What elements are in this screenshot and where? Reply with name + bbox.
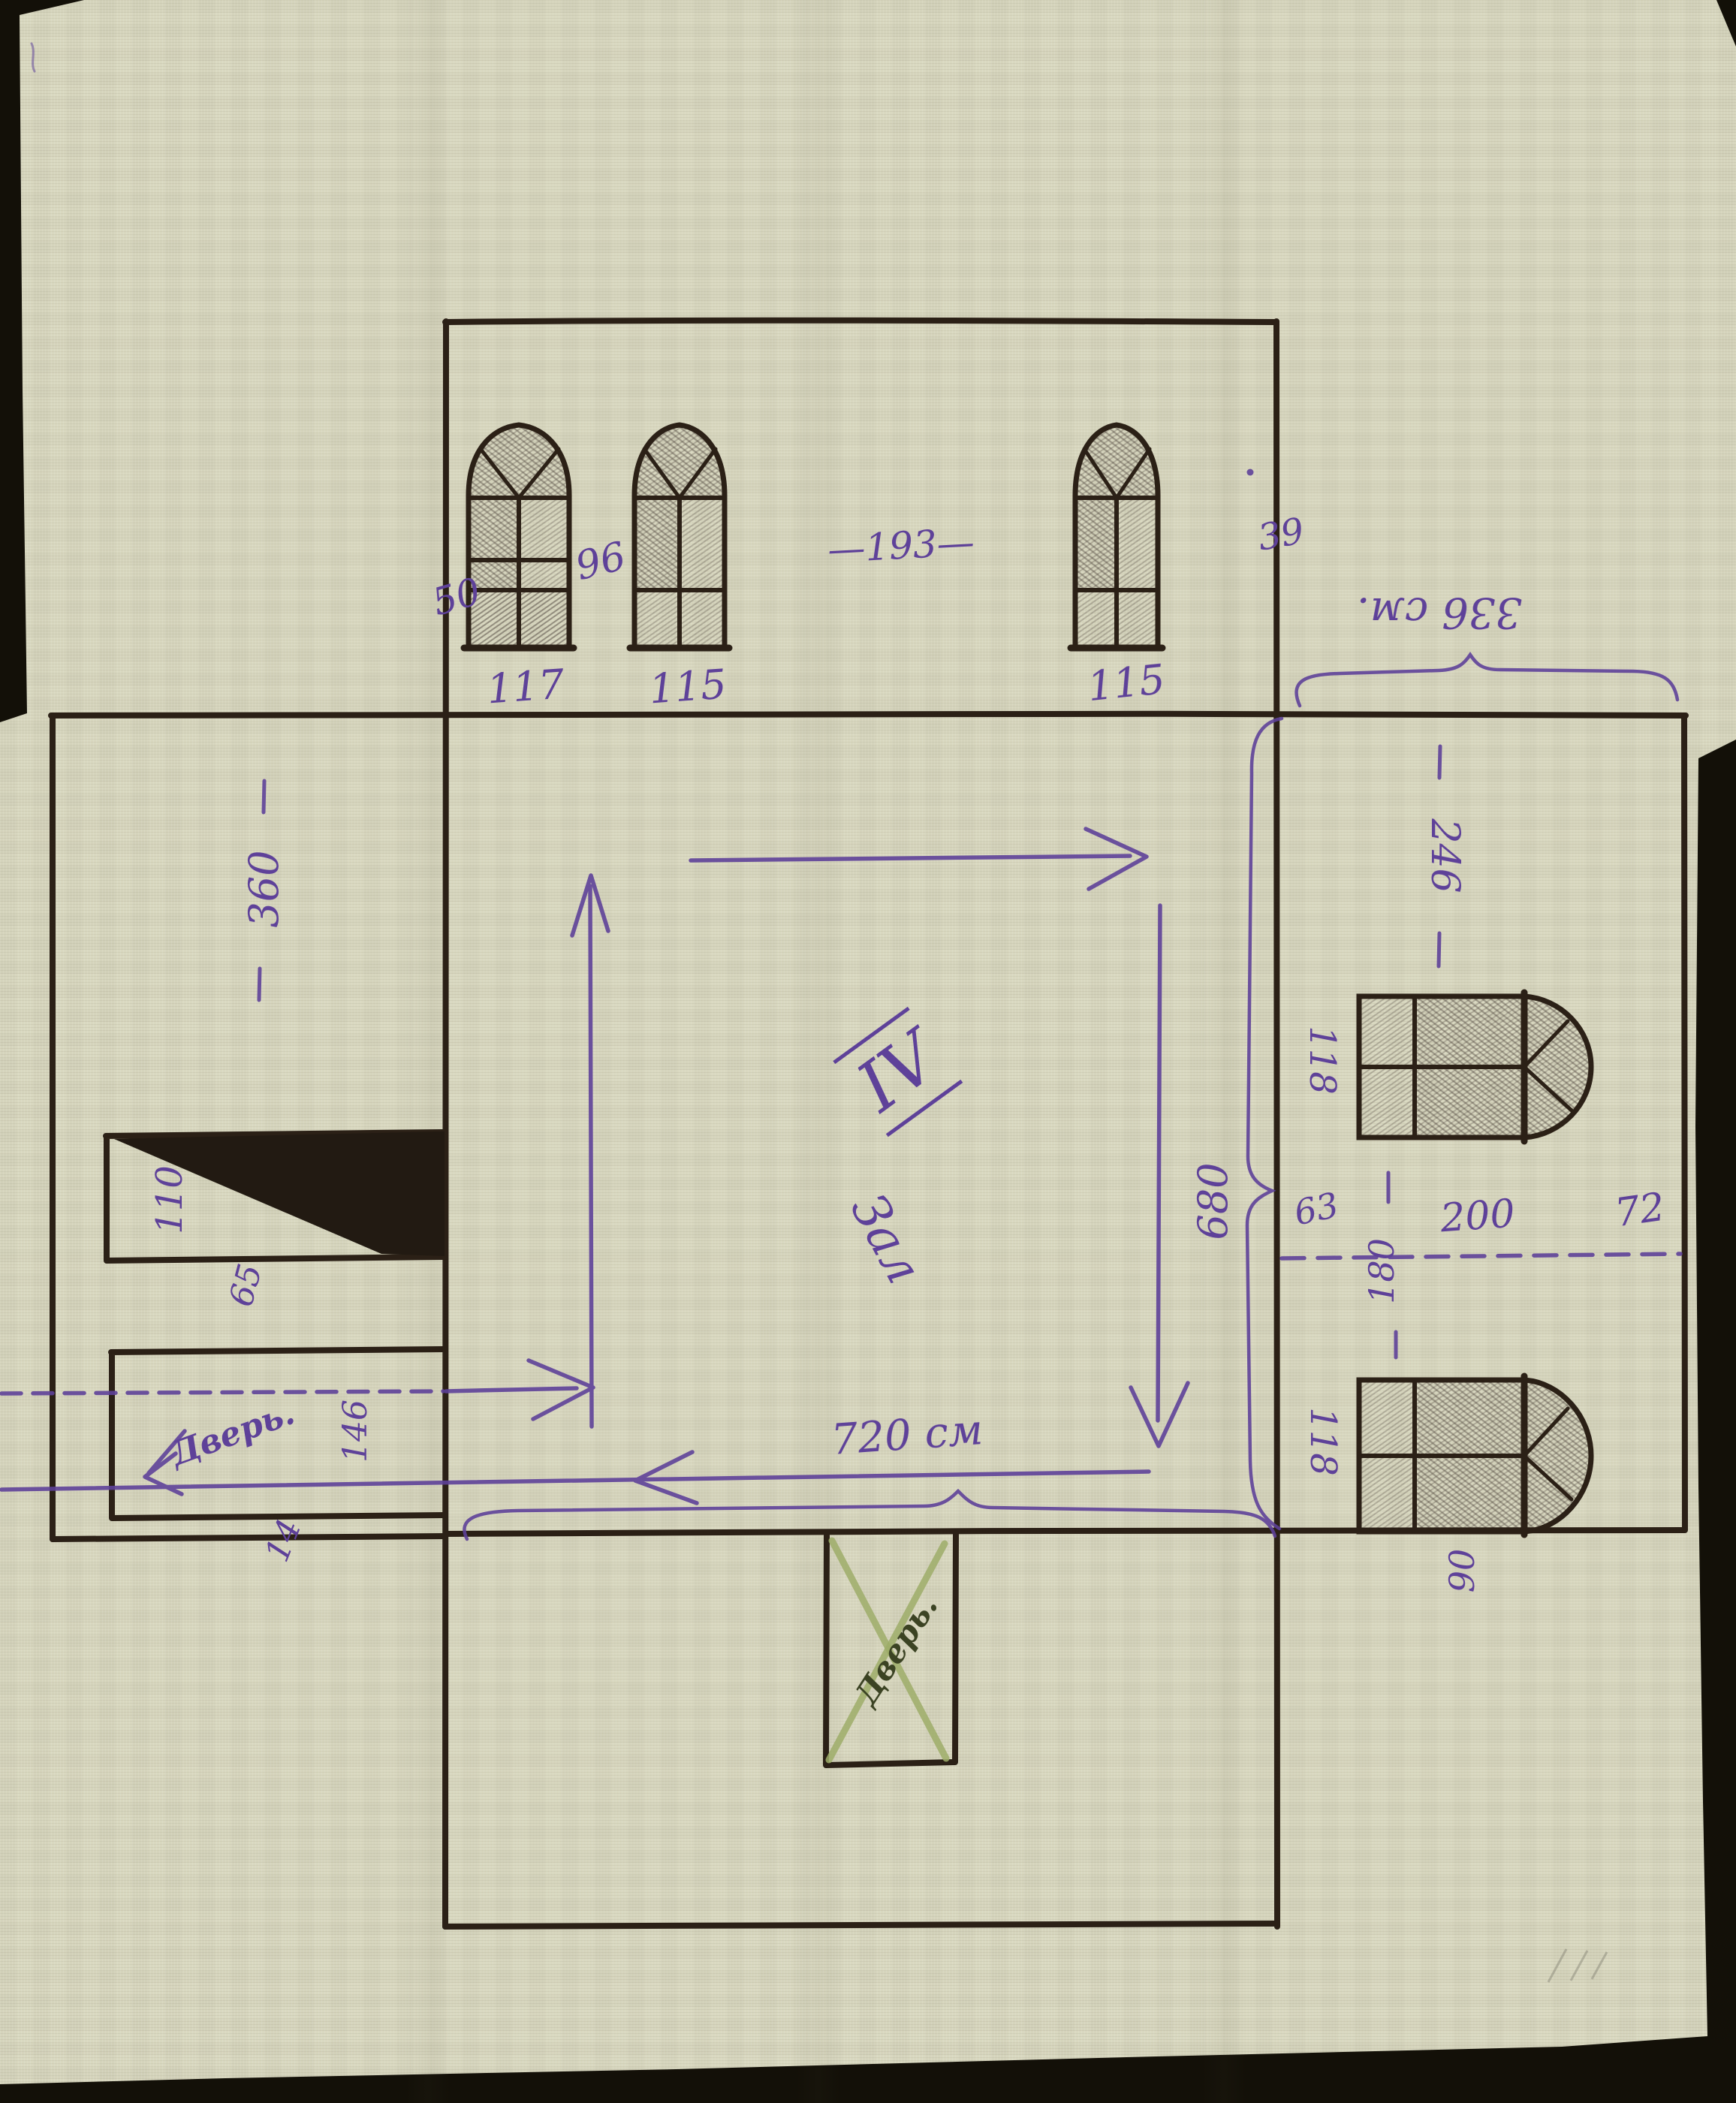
floor-plan-photo: 50 117 96 115 —193— 115 39 336 см. 246 1… <box>0 0 1736 2103</box>
dim-right-upper-segment: 246 <box>1425 818 1464 893</box>
dim-stairs-110: 110 <box>152 1165 188 1234</box>
arrow-right <box>691 829 1147 889</box>
window-hatching <box>469 425 1607 1982</box>
brace-336 <box>1297 655 1677 706</box>
small-corner-mark <box>32 44 35 71</box>
dim-door-width-146: 146 <box>339 1399 372 1463</box>
central-block-bottom-wall <box>445 1924 1276 1927</box>
right-outer-wall <box>1684 716 1685 1530</box>
dim-right-mid-200: 200 <box>1439 1195 1517 1239</box>
dim-top-between: —193— <box>827 523 975 568</box>
dim-right-mid-180: 180 <box>1364 1238 1399 1304</box>
main-cross-wall <box>51 713 1686 716</box>
arrow-down-680 <box>1131 905 1188 1446</box>
top-windows <box>464 425 1162 648</box>
dashed-line-right-section <box>1282 1254 1680 1258</box>
dim-annex-depth-360: 360 <box>244 850 285 927</box>
central-block-left-wall <box>445 321 446 1927</box>
dim-right-upper-window: 118 <box>1304 1026 1340 1095</box>
arrow-up <box>572 875 608 1427</box>
dim-right-offset-72: 72 <box>1613 1188 1668 1234</box>
dim-room-width-720: 720 см <box>830 1409 984 1462</box>
dim-room-height-680: 680 <box>1193 1162 1234 1240</box>
left-annex-bottom-wall <box>53 1536 445 1539</box>
dim-right-lower-window: 118 <box>1305 1407 1341 1476</box>
dim-top-right-offset: 39 <box>1255 513 1307 556</box>
dim-window2-width: 115 <box>648 664 728 710</box>
dim-right-wing-width: 336 см. <box>1357 591 1522 633</box>
small-ink-dot <box>1247 469 1254 476</box>
central-block-right-wall <box>1276 321 1277 1927</box>
dim-top-gap1: 96 <box>572 537 630 586</box>
dim-window3-width: 115 <box>1086 659 1167 707</box>
dim-right-offset-63: 63 <box>1291 1187 1342 1230</box>
dim-right-below-90: 90 <box>1445 1549 1479 1593</box>
door-axis-line <box>2 1360 593 1419</box>
dim-window1-width: 117 <box>486 664 566 710</box>
central-block-top-wall <box>445 321 1276 322</box>
purple-annotations <box>2 44 1680 1539</box>
